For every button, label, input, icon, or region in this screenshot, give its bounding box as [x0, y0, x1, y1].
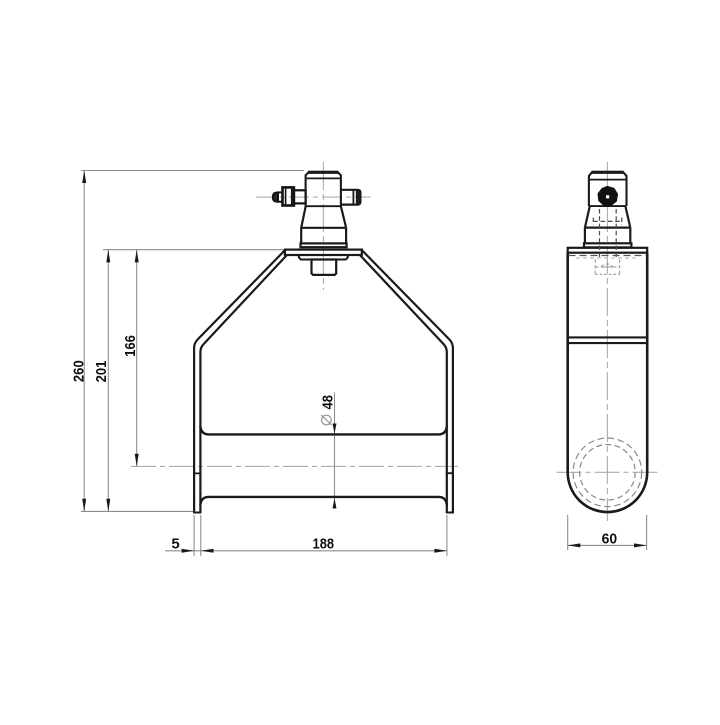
- svg-text:48: 48: [320, 395, 337, 409]
- svg-text:166: 166: [122, 335, 139, 357]
- svg-text:260: 260: [70, 360, 87, 382]
- svg-text:60: 60: [602, 530, 618, 547]
- svg-text:188: 188: [313, 535, 335, 552]
- svg-text:201: 201: [93, 361, 110, 383]
- svg-text:5: 5: [171, 535, 179, 552]
